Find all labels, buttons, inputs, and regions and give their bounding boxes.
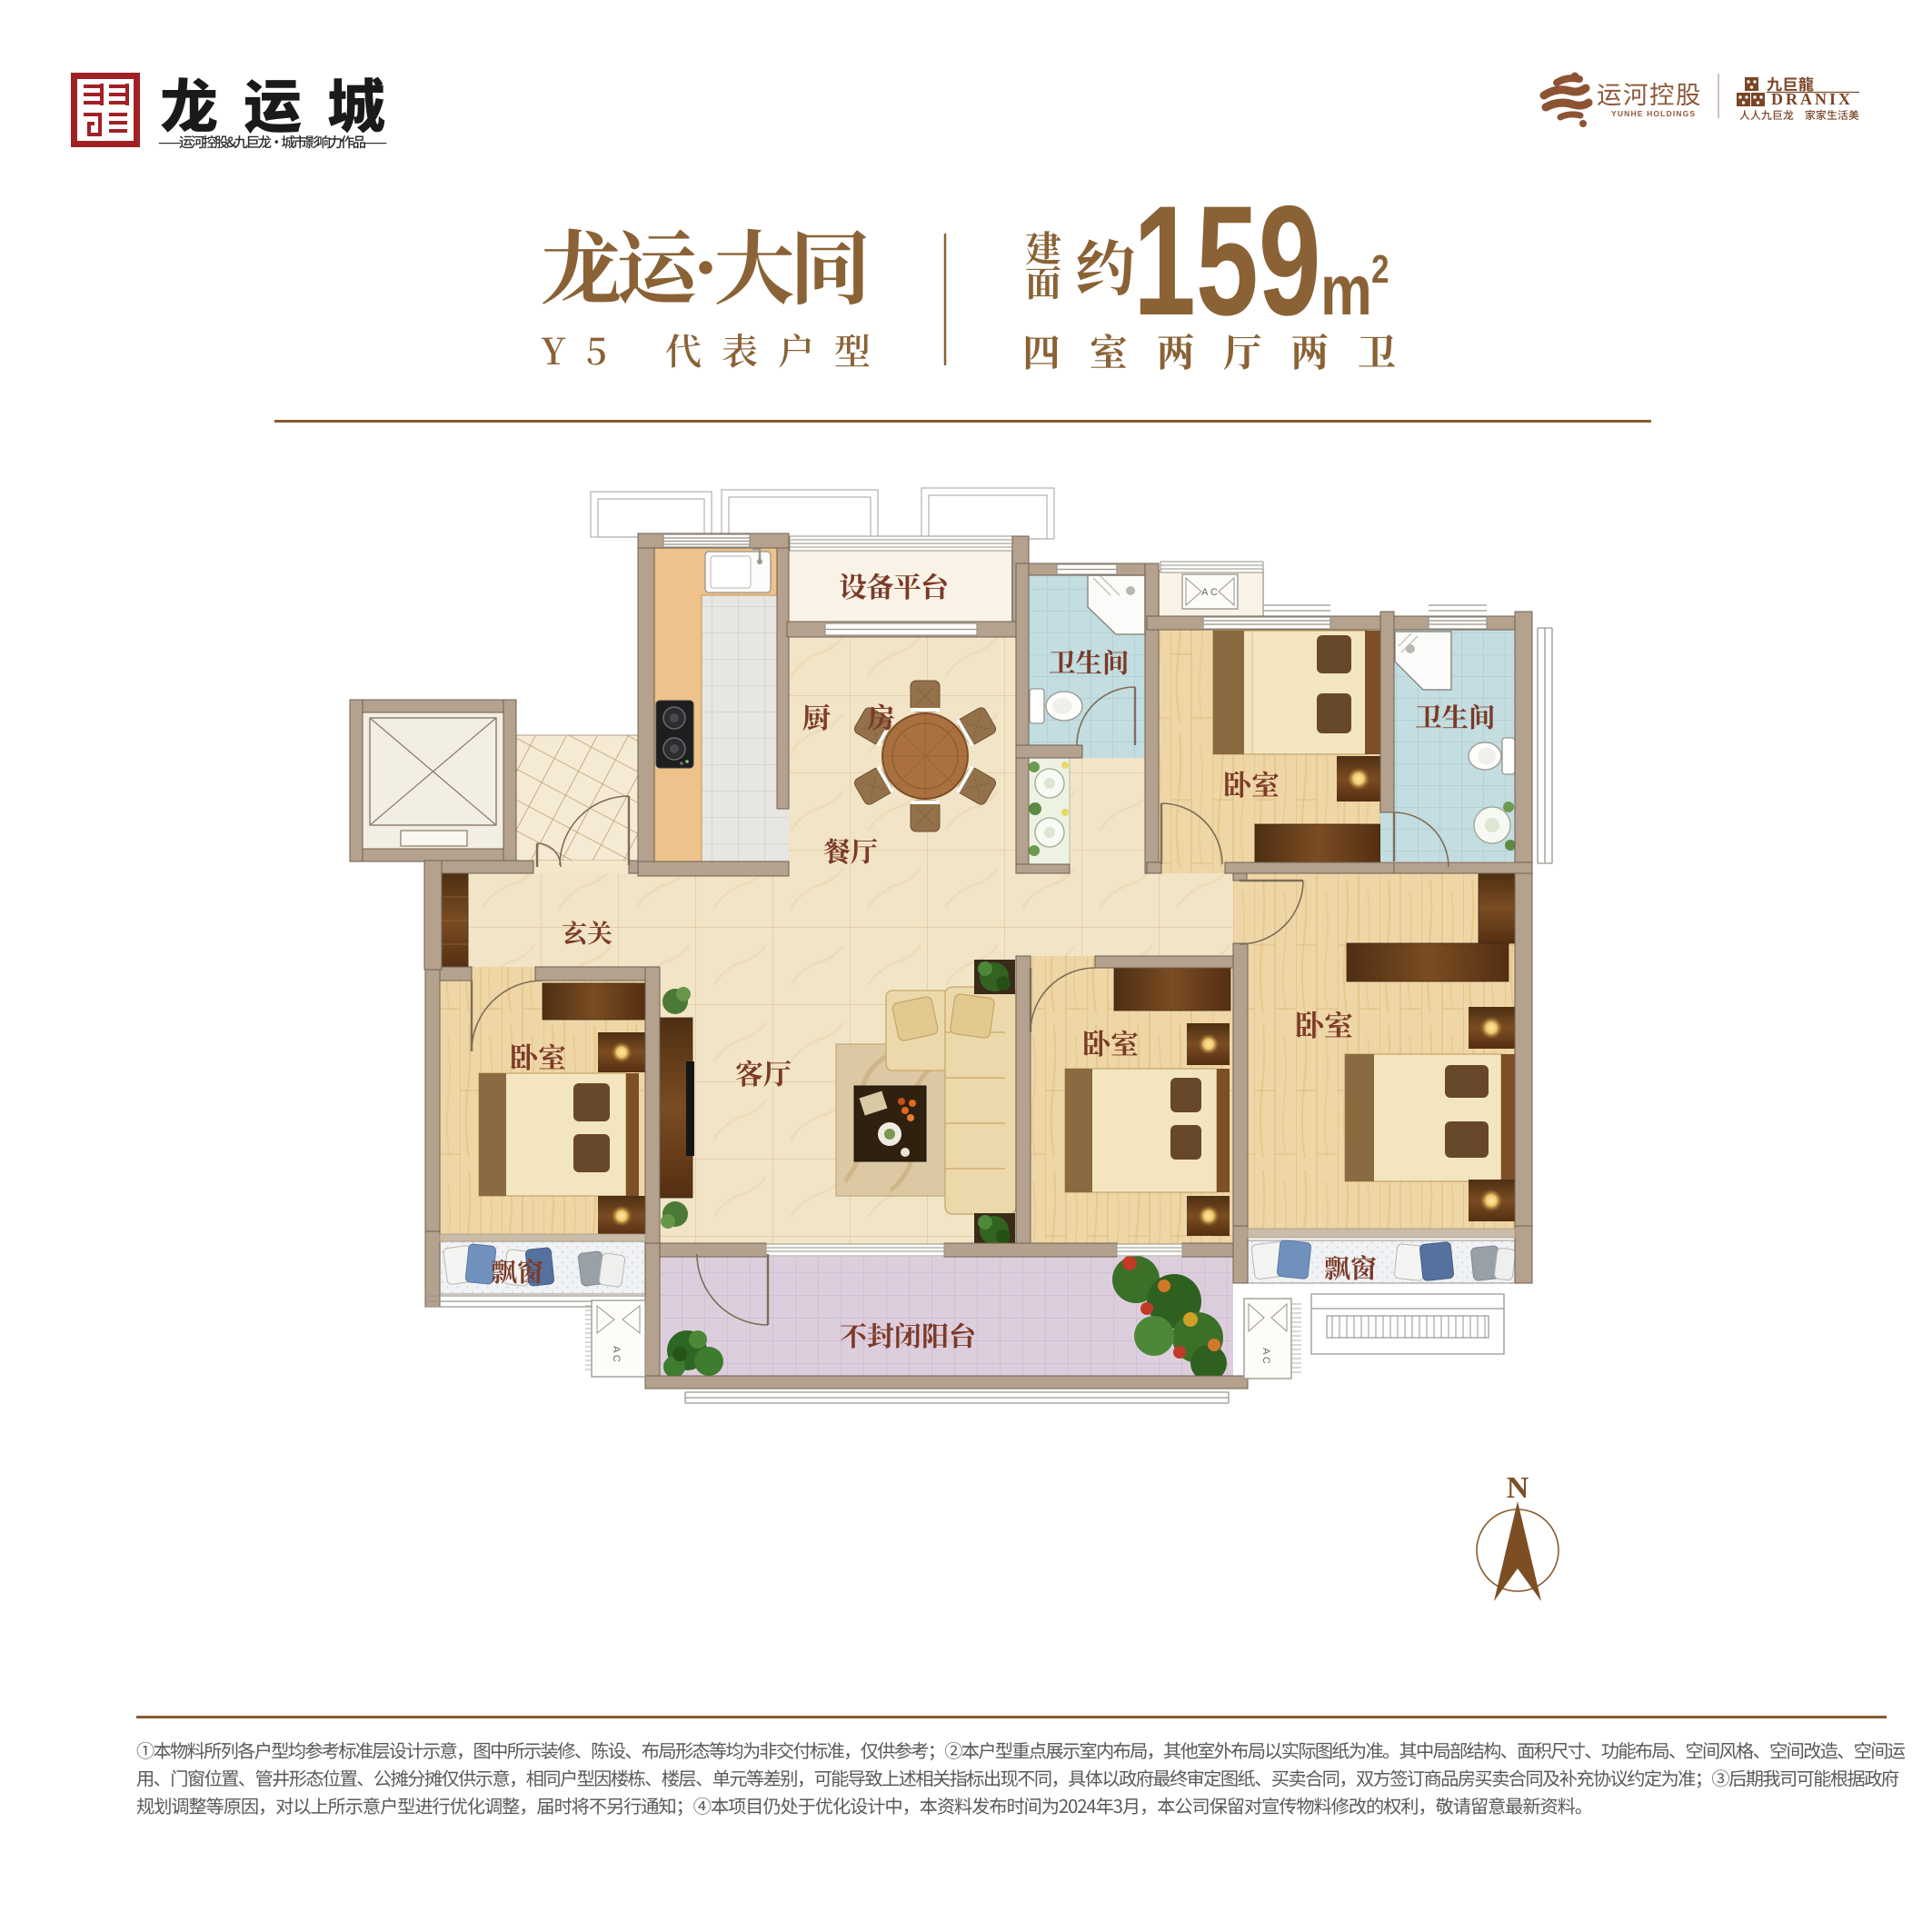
svg-text:A C: A C — [611, 1346, 622, 1362]
svg-text:YUNHE HOLDINGS: YUNHE HOLDINGS — [1611, 109, 1696, 118]
svg-text:159: 159 — [1133, 173, 1321, 348]
svg-text:DRANIX: DRANIX — [1771, 90, 1853, 108]
svg-text:2: 2 — [1371, 247, 1389, 292]
svg-text:N: N — [1507, 1471, 1529, 1505]
svg-text:A C: A C — [1201, 587, 1218, 598]
svg-text:m: m — [1320, 251, 1372, 330]
svg-text:A C: A C — [1260, 1348, 1271, 1364]
